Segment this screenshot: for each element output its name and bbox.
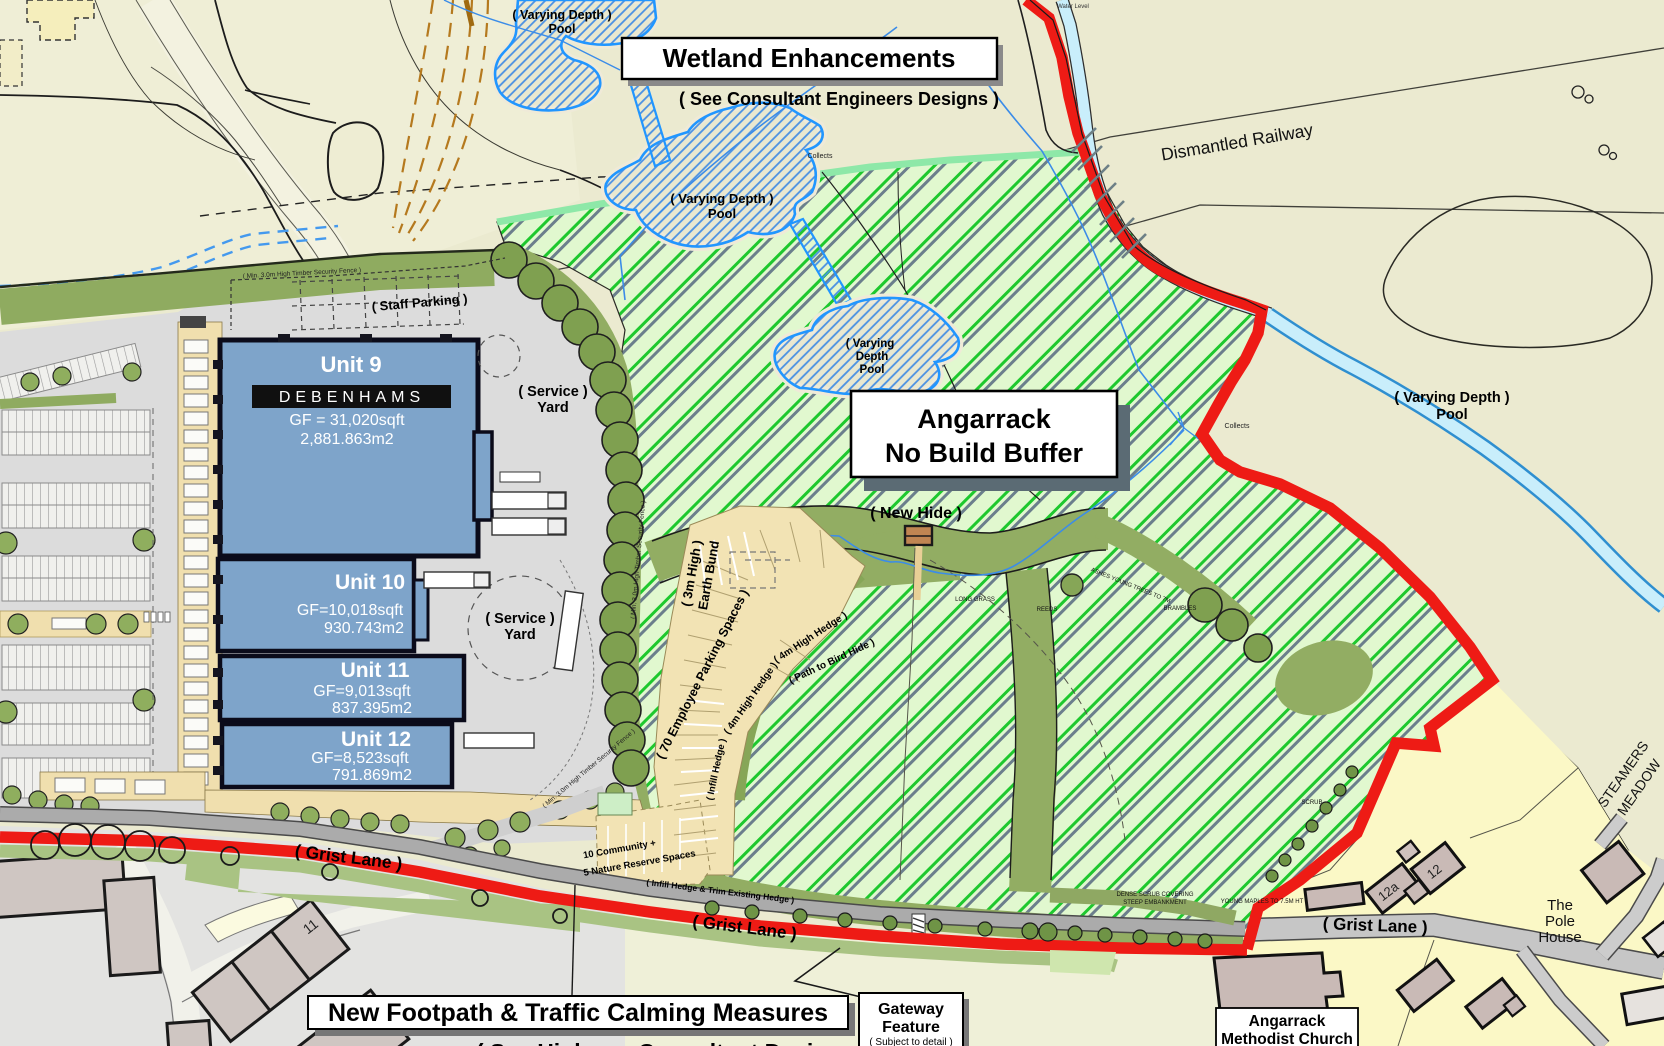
svg-text:( Varying Depth ): ( Varying Depth ) <box>512 8 611 22</box>
svg-text:Collects: Collects <box>808 153 833 160</box>
svg-text:930.743m2: 930.743m2 <box>324 620 404 637</box>
svg-text:Pole: Pole <box>1545 913 1575 930</box>
svg-text:( Subject to detail ): ( Subject to detail ) <box>869 1037 952 1046</box>
svg-text:( Service ): ( Service ) <box>518 384 587 400</box>
svg-text:( See Highway Consultant Desig: ( See Highway Consultant Designs ) <box>476 1039 868 1046</box>
svg-text:REEDS: REEDS <box>1037 607 1058 613</box>
svg-text:GF = 31,020sqft: GF = 31,020sqft <box>289 412 405 429</box>
svg-text:2,881.863m2: 2,881.863m2 <box>300 431 394 448</box>
svg-text:Gateway: Gateway <box>878 1001 944 1018</box>
svg-text:Pool: Pool <box>708 206 736 221</box>
svg-text:Angarrack: Angarrack <box>1249 1013 1326 1030</box>
svg-text:Unit 10: Unit 10 <box>335 571 405 594</box>
svg-text:Wetland Enhancements: Wetland Enhancements <box>663 43 956 73</box>
svg-text:No Build Buffer: No Build Buffer <box>885 438 1083 468</box>
svg-text:837.395m2: 837.395m2 <box>332 700 412 717</box>
svg-text:LONG GRASS: LONG GRASS <box>955 597 995 603</box>
svg-text:Pool: Pool <box>548 22 575 36</box>
svg-text:STEEP EMBANKMENT: STEEP EMBANKMENT <box>1123 900 1187 906</box>
svg-text:Pool: Pool <box>1436 407 1467 423</box>
svg-text:Pool: Pool <box>860 364 885 376</box>
svg-text:The: The <box>1547 897 1573 914</box>
svg-text:GF=8,523sqft: GF=8,523sqft <box>311 750 409 767</box>
svg-text:SCRUB: SCRUB <box>1301 800 1322 806</box>
svg-text:( Varying: ( Varying <box>846 338 895 350</box>
svg-text:Feature: Feature <box>882 1019 940 1036</box>
svg-text:( Varying Depth ): ( Varying Depth ) <box>1394 390 1509 406</box>
svg-text:DEBENHAMS: DEBENHAMS <box>279 389 425 406</box>
svg-text:( Service ): ( Service ) <box>485 611 554 627</box>
svg-text:New Footpath & Traffic Calming: New Footpath & Traffic Calming Measures <box>328 999 828 1027</box>
svg-text:Yard: Yard <box>504 627 535 643</box>
svg-text:( See Consultant Engineers Des: ( See Consultant Engineers Designs ) <box>679 89 999 109</box>
svg-text:( Grist Lane ): ( Grist Lane ) <box>1322 914 1427 937</box>
svg-text:DENSE SCRUB COVERING: DENSE SCRUB COVERING <box>1116 892 1193 898</box>
svg-text:House: House <box>1538 929 1581 946</box>
svg-text:BRAMBLES: BRAMBLES <box>1164 606 1197 612</box>
svg-text:Unit 12: Unit 12 <box>341 728 411 751</box>
svg-text:YOUNG MAPLES TO 7.5M HT: YOUNG MAPLES TO 7.5M HT <box>1221 899 1304 905</box>
svg-text:( New Hide ): ( New Hide ) <box>870 505 962 522</box>
svg-text:791.869m2: 791.869m2 <box>332 767 412 784</box>
svg-text:Methodist Church: Methodist Church <box>1221 1031 1353 1046</box>
svg-text:( Varying Depth ): ( Varying Depth ) <box>670 191 773 206</box>
svg-text:Yard: Yard <box>537 400 568 416</box>
svg-text:Depth: Depth <box>856 351 889 363</box>
svg-text:Water Level: Water Level <box>1057 4 1089 10</box>
svg-text:GF=10,018sqft: GF=10,018sqft <box>297 602 404 619</box>
svg-text:Collects: Collects <box>1225 423 1250 430</box>
svg-text:Unit 11: Unit 11 <box>341 659 410 682</box>
svg-text:Unit 9: Unit 9 <box>320 352 381 377</box>
svg-text:GF=9,013sqft: GF=9,013sqft <box>313 683 411 700</box>
svg-text:Angarrack: Angarrack <box>917 404 1052 434</box>
